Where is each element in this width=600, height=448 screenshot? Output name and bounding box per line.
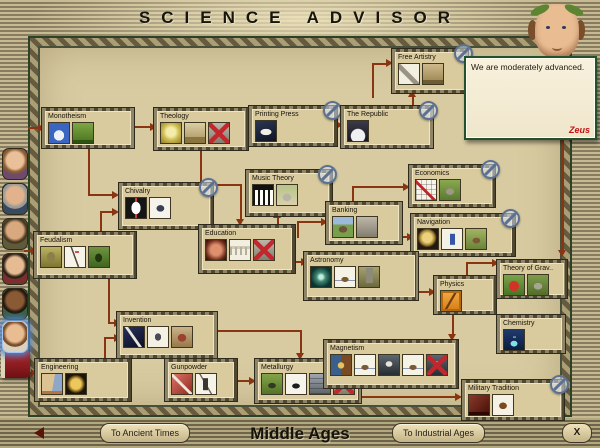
arrow-line	[466, 262, 468, 277]
arrow-line	[352, 187, 354, 203]
tech-label: Feudalism	[40, 236, 130, 246]
tech-icons	[205, 239, 289, 261]
arrow-line	[362, 396, 457, 398]
privateer-icon[interactable]	[402, 354, 424, 376]
saltpeter-icon[interactable]	[171, 373, 193, 395]
red-cross-overlay-icon	[254, 240, 274, 260]
tech-banking[interactable]: Banking	[326, 202, 402, 244]
military-academy-icon[interactable]	[468, 394, 490, 416]
tech-feudalism[interactable]: Feudalism	[34, 232, 136, 278]
arrow-line	[240, 184, 242, 220]
printing-press-icon[interactable]	[255, 120, 277, 142]
arrow-line	[104, 337, 106, 360]
musketman-unit-icon[interactable]	[195, 373, 217, 395]
tech-icons	[125, 197, 207, 219]
tech-engineering[interactable]: Engineering	[35, 359, 131, 401]
advisor-eye	[546, 26, 550, 29]
tech-the-republic[interactable]: The Republic	[341, 106, 433, 148]
arrow-head	[112, 208, 119, 216]
bach-cathedral-icon[interactable]	[276, 184, 298, 206]
domestic-advisor-portrait[interactable]	[2, 148, 28, 180]
advisor-mouth	[552, 44, 562, 51]
tech-label: Navigation	[417, 218, 509, 228]
unavailable-ship-icon[interactable]	[426, 354, 448, 376]
tech-label: Chivalry	[125, 187, 207, 197]
newton-college-icon[interactable]	[527, 274, 549, 296]
leonardos-workshop-icon[interactable]	[171, 326, 193, 348]
arrow-line	[88, 194, 114, 196]
tech-military-tradition[interactable]: Military Tradition	[462, 380, 564, 420]
tech-label: Printing Press	[255, 110, 331, 120]
tech-label: Education	[205, 229, 289, 239]
pikemen-field-icon[interactable]	[88, 246, 110, 268]
tech-theology[interactable]: Theology	[154, 108, 248, 150]
optional-tech-badge-icon	[419, 101, 438, 120]
bank-icon[interactable]	[332, 216, 354, 238]
arrow-line	[562, 140, 564, 252]
galleon-icon[interactable]	[354, 354, 376, 376]
caravel-icon[interactable]	[334, 266, 356, 288]
tech-icons	[310, 266, 412, 288]
optional-tech-badge-icon	[199, 178, 218, 197]
tech-label: Theory of Grav..	[503, 264, 561, 274]
optional-tech-badge-icon	[318, 165, 337, 184]
screen-title: SCIENCE ADVISOR	[0, 8, 600, 28]
frigate-icon[interactable]	[378, 354, 400, 376]
tech-printing-press[interactable]: Printing Press	[249, 106, 337, 146]
arrow-line	[300, 330, 302, 355]
tech-icons	[417, 228, 509, 250]
unavailable-wonder-icon[interactable]	[208, 122, 230, 144]
knight-horse-icon[interactable]	[149, 197, 171, 219]
sextant-icon[interactable]	[417, 228, 439, 250]
sistine-chapel-icon[interactable]	[184, 122, 206, 144]
tech-label: Invention	[123, 316, 211, 326]
optional-tech-badge-icon	[550, 375, 569, 394]
tech-label: Physics	[440, 280, 490, 290]
newton-apple-icon[interactable]	[503, 274, 525, 296]
theatre-icon[interactable]	[422, 63, 444, 85]
tech-label: Gunpowder	[171, 363, 231, 373]
tech-label: Music Theory	[252, 174, 326, 184]
tech-icons	[40, 246, 130, 268]
red-cross-overlay-icon	[427, 355, 447, 375]
arrow-line	[452, 314, 454, 335]
tech-icons	[347, 120, 427, 142]
tech-icons	[440, 290, 490, 312]
bridge-sketch-icon[interactable]	[41, 373, 63, 395]
arrow-line	[297, 221, 323, 223]
arrow-line	[218, 330, 300, 332]
tech-label: Banking	[332, 206, 396, 216]
tech-icons	[252, 184, 326, 206]
tech-theory-of-gravity[interactable]: Theory of Grav..	[497, 260, 567, 298]
cannon-unit-icon[interactable]	[285, 373, 307, 395]
heraldic-shield-icon[interactable]	[125, 197, 147, 219]
flying-machine-icon[interactable]	[147, 326, 169, 348]
harbor-icon[interactable]	[465, 228, 487, 250]
compass-icon[interactable]	[330, 354, 352, 376]
knowledge-orb-icon[interactable]	[205, 239, 227, 261]
cavalry-unit-icon[interactable]	[492, 394, 514, 416]
quill-night-icon[interactable]	[123, 326, 145, 348]
tech-icons	[41, 373, 125, 395]
tech-label: Chemistry	[503, 319, 559, 329]
optional-tech-badge-icon	[323, 101, 342, 120]
armor-icon[interactable]	[40, 246, 62, 268]
arrow-line	[108, 278, 110, 323]
tech-chivalry[interactable]: Chivalry	[119, 183, 213, 229]
tech-label: Astronomy	[310, 256, 412, 266]
tech-music-theory[interactable]: Music Theory	[246, 170, 332, 216]
tech-astronomy[interactable]: Astronomy	[304, 252, 418, 300]
arrow-line	[100, 211, 102, 233]
tech-invention[interactable]: Invention	[117, 312, 217, 358]
science-advisor-screen: SCIENCE ADVISOR MonotheismTheologyPrinti…	[0, 0, 600, 448]
arrow-line	[88, 147, 90, 195]
unavailable-wonder-icon[interactable]	[253, 239, 275, 261]
advisor-link[interactable]: Zeus	[569, 125, 590, 135]
tech-gunpowder[interactable]: Gunpowder	[165, 359, 237, 401]
tech-monotheism[interactable]: Monotheism	[42, 108, 134, 148]
foreign-advisor-portrait[interactable]	[2, 253, 28, 285]
military-advisor-portrait[interactable]	[2, 218, 28, 250]
advisor-dialog: We are moderately advanced. Zeus	[464, 56, 597, 140]
university-icon[interactable]	[229, 239, 251, 261]
cultural-advisor-portrait[interactable]	[2, 288, 28, 320]
tech-icons	[415, 179, 489, 201]
advisor-eye	[562, 26, 566, 29]
arrow-line	[466, 262, 494, 264]
tech-icons	[330, 354, 452, 376]
tech-icons	[123, 326, 211, 348]
stone-building-icon[interactable]	[356, 216, 378, 238]
arrow-head	[455, 393, 462, 401]
cannon-field-icon[interactable]	[261, 373, 283, 395]
red-cross-overlay-icon	[209, 123, 229, 143]
tech-icons	[171, 373, 231, 395]
tech-label: Free Artistry	[398, 53, 462, 63]
galaxy-icon[interactable]	[310, 266, 332, 288]
tech-icons	[332, 216, 396, 238]
tech-physics[interactable]: Physics	[434, 276, 496, 314]
knight-unit-icon[interactable]	[72, 122, 94, 144]
tech-label: Economics	[415, 169, 489, 179]
era-title: Middle Ages	[0, 424, 600, 444]
tech-icons	[503, 329, 559, 351]
arrow-head	[112, 191, 119, 199]
optional-tech-badge-icon	[501, 209, 520, 228]
pikeman-unit-icon[interactable]	[64, 246, 86, 268]
tech-icons	[468, 394, 558, 416]
trade-advisor-portrait[interactable]	[2, 183, 28, 215]
tech-label: Monotheism	[48, 112, 128, 122]
tech-label: The Republic	[347, 110, 427, 120]
science-advisor-portrait[interactable]	[2, 321, 28, 353]
piano-keys-icon[interactable]	[252, 184, 274, 206]
quill-icon[interactable]	[398, 63, 420, 85]
explorer-unit-icon[interactable]	[441, 228, 463, 250]
cathedral-icon[interactable]	[48, 122, 70, 144]
tech-icons	[255, 120, 331, 142]
gold-medal-icon[interactable]	[65, 373, 87, 395]
civilopedia-book-icon[interactable]	[1, 350, 30, 378]
tech-label: Theology	[160, 112, 242, 122]
tech-magnetism[interactable]: Magnetism	[324, 340, 458, 388]
tech-label: Military Tradition	[468, 384, 558, 394]
statue-icon[interactable]	[160, 122, 182, 144]
to-industrial-ages-button[interactable]: To Industrial Ages	[392, 423, 485, 443]
arrow-line	[352, 186, 405, 188]
tech-label: Engineering	[41, 363, 125, 373]
tech-economics[interactable]: Economics	[409, 165, 495, 207]
tech-education[interactable]: Education	[199, 225, 295, 273]
tech-icons	[160, 122, 242, 144]
optional-tech-badge-icon	[481, 160, 500, 179]
tech-icons	[48, 122, 128, 144]
trading-company-icon[interactable]	[439, 179, 461, 201]
flask-icon[interactable]	[503, 329, 525, 351]
republic-building-icon[interactable]	[347, 120, 369, 142]
arrow-line	[372, 64, 374, 98]
tech-icons	[503, 274, 561, 296]
tech-icons	[398, 63, 462, 85]
close-button[interactable]: X	[562, 423, 592, 443]
tech-free-artistry[interactable]: Free Artistry	[392, 49, 468, 93]
pendulum-sketch-icon[interactable]	[440, 290, 462, 312]
arrow-line	[297, 222, 299, 238]
tech-label: Magnetism	[330, 344, 452, 354]
arrow-head	[558, 250, 566, 257]
stock-chart-icon[interactable]	[415, 179, 437, 201]
observatory-icon[interactable]	[358, 266, 380, 288]
tech-chemistry[interactable]: Chemistry	[497, 315, 565, 353]
advisor-message: We are moderately advanced.	[471, 62, 590, 72]
tech-navigation[interactable]: Navigation	[411, 214, 515, 256]
